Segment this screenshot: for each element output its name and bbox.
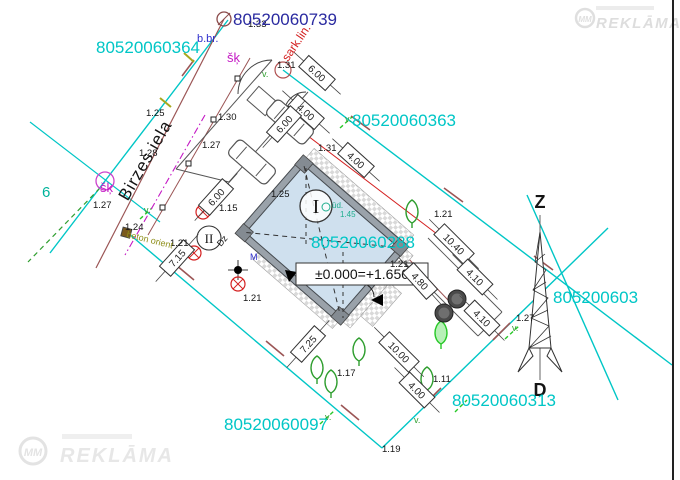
map-label: 1.28 bbox=[139, 148, 158, 159]
tree-glyph bbox=[406, 200, 418, 228]
north-fin-left bbox=[518, 348, 533, 372]
map-label: 1.27 bbox=[93, 200, 112, 211]
tree-glyph bbox=[311, 356, 323, 384]
tree-symbol bbox=[311, 356, 323, 384]
compass-north-label: Z bbox=[535, 192, 546, 212]
map-label: šķ bbox=[100, 180, 114, 195]
manhole-lid bbox=[439, 308, 450, 319]
north-tower-outline bbox=[529, 232, 551, 348]
map-label: 1.11 bbox=[433, 374, 451, 385]
map-label: 1.31 bbox=[318, 143, 337, 154]
watermark-logo: MM bbox=[24, 447, 43, 459]
map-label: 1.15 bbox=[219, 203, 238, 214]
watermark-logo: MM bbox=[578, 15, 592, 24]
map-label: v. bbox=[512, 323, 518, 333]
tree-symbol bbox=[406, 200, 418, 228]
aux-building-number: II bbox=[205, 231, 214, 246]
dimension: 6.00 bbox=[189, 168, 243, 225]
tree-glyph bbox=[353, 338, 365, 366]
map-label: šķ bbox=[227, 50, 241, 65]
map-label: v. bbox=[144, 205, 150, 215]
dimension: 10.40 bbox=[424, 214, 484, 274]
dimension: 4.10 bbox=[454, 290, 510, 346]
survey-circle-slash bbox=[218, 13, 230, 25]
car bbox=[227, 138, 278, 186]
watermark-bottom-left: MM REKLĀMA bbox=[20, 434, 174, 467]
map-label: v. bbox=[262, 69, 268, 79]
site-plan-canvas: I II ±0.000=+1.650 Z D Birzes iela bbox=[0, 0, 680, 480]
map-label: 1.25 bbox=[271, 189, 290, 200]
tree-symbol bbox=[435, 321, 447, 349]
watermark-brand: REKLĀMA bbox=[596, 15, 680, 32]
tree-symbol bbox=[325, 370, 337, 398]
parcel-number: 80520060739 bbox=[233, 10, 337, 29]
manhole-lid bbox=[452, 294, 463, 305]
map-label: 6 bbox=[42, 184, 50, 201]
map-label: 1.19 bbox=[382, 444, 401, 455]
utility-ticks-olive bbox=[160, 53, 194, 107]
watermark-smalltext-bar bbox=[62, 434, 132, 439]
manhole bbox=[435, 304, 453, 322]
watermark-brand: REKLĀMA bbox=[60, 445, 174, 467]
map-label: 1.21 bbox=[390, 259, 409, 270]
map-label: 1.30 bbox=[218, 112, 237, 123]
tree-glyph bbox=[325, 370, 337, 398]
map-label: 1.21 bbox=[243, 293, 262, 304]
map-label: 1.17 bbox=[337, 368, 356, 379]
map-label: b.br. bbox=[197, 33, 218, 45]
parcel-number: 80520060313 bbox=[452, 391, 556, 410]
map-label: 1.45 bbox=[340, 210, 356, 219]
watermark-top-right: MM REKLĀMA bbox=[576, 6, 680, 32]
tree-glyph bbox=[435, 321, 447, 349]
map-label: 1.27 bbox=[202, 140, 221, 151]
map-label: ūd. bbox=[332, 201, 343, 210]
map-label: M bbox=[250, 252, 258, 262]
storey-number: I bbox=[313, 196, 320, 218]
site-plan-drawing: I II ±0.000=+1.650 Z D Birzes iela bbox=[0, 0, 680, 480]
parcel-number: 80520060097 bbox=[224, 415, 328, 434]
parcel-number: 805200603 bbox=[553, 288, 638, 307]
dimension: 6.00 bbox=[288, 46, 345, 100]
map-label: 1.25 bbox=[146, 108, 165, 119]
map-label: v. bbox=[414, 415, 420, 425]
map-label: 1.21 bbox=[434, 209, 453, 220]
north-fin-right bbox=[547, 348, 562, 372]
parcel-number: 80520060363 bbox=[352, 111, 456, 130]
watermark-smalltext-bar bbox=[596, 6, 654, 10]
parcel-number: 80520060288 bbox=[311, 233, 415, 252]
tree-symbol bbox=[353, 338, 365, 366]
map-label: 1.27 bbox=[516, 313, 535, 324]
dimension: 10.00 bbox=[369, 322, 429, 382]
map-label: v. bbox=[345, 114, 351, 124]
street-name: Birzes iela bbox=[115, 117, 176, 204]
parcel-number: 80520060364 bbox=[96, 38, 200, 57]
boundary-dashed-extension bbox=[28, 188, 100, 262]
